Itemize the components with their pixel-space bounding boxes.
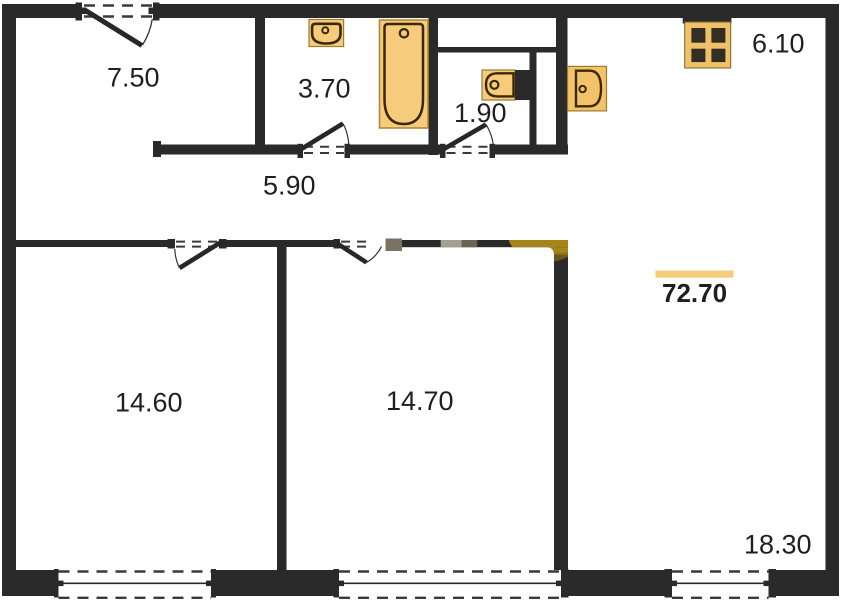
svg-text:6.10: 6.10 [752, 29, 805, 59]
svg-text:14.70: 14.70 [386, 386, 454, 416]
svg-text:3.70: 3.70 [298, 74, 351, 104]
svg-text:72.70: 72.70 [662, 278, 727, 308]
svg-text:7.50: 7.50 [107, 62, 160, 92]
svg-text:14.60: 14.60 [115, 387, 183, 417]
svg-text:18.30: 18.30 [744, 530, 812, 560]
svg-text:5.90: 5.90 [263, 171, 316, 201]
svg-text:1.90: 1.90 [454, 98, 507, 128]
